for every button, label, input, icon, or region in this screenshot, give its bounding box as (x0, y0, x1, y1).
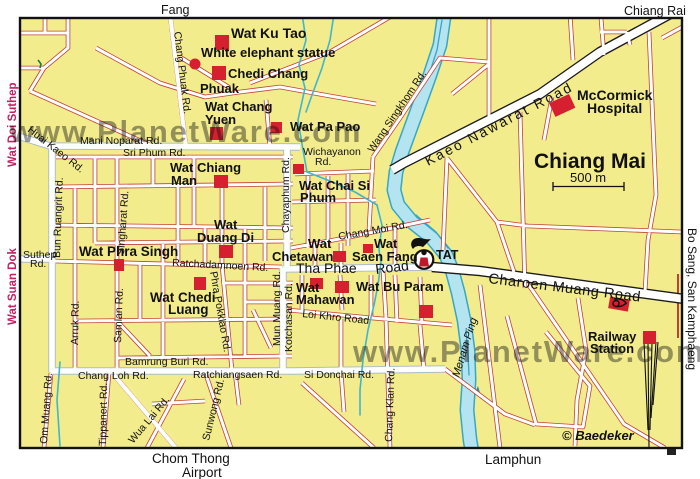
svg-text:Rd.: Rd. (315, 156, 331, 168)
svg-text:Wat Phra Singh: Wat Phra Singh (79, 244, 178, 259)
svg-text:Si Donchai Rd.: Si Donchai Rd. (304, 369, 374, 381)
svg-text:© Baedeker: © Baedeker (562, 428, 635, 443)
svg-text:Phuak: Phuak (200, 81, 240, 96)
svg-text:Samlan Rd.: Samlan Rd. (112, 288, 126, 343)
svg-text:Kotchasan Rd.: Kotchasan Rd. (283, 283, 295, 352)
svg-text:Mun Muang Rd.: Mun Muang Rd. (271, 271, 283, 346)
svg-text:Airport: Airport (182, 465, 222, 479)
svg-text:Tha Phae: Tha Phae (296, 260, 357, 276)
svg-text:Chiang Rai: Chiang Rai (624, 4, 686, 18)
svg-text:Duang Di: Duang Di (197, 230, 254, 245)
svg-text:Chang Loh Rd.: Chang Loh Rd. (78, 370, 149, 382)
svg-text:Rd.: Rd. (30, 258, 46, 270)
svg-text:Chom Thong: Chom Thong (152, 451, 230, 466)
svg-text:Bamrung Buri Rd.: Bamrung Buri Rd. (125, 356, 208, 368)
svg-text:Wat Bu Param: Wat Bu Param (356, 279, 444, 294)
svg-text:Wat Suan Dok: Wat Suan Dok (7, 248, 19, 325)
svg-text:Ratchiangsaen Rd.: Ratchiangsaen Rd. (193, 369, 282, 381)
svg-text:www.PlanetWare.com: www.PlanetWare.com (9, 114, 362, 149)
svg-text:Lamphun: Lamphun (485, 452, 541, 467)
svg-text:Arruk Rd.: Arruk Rd. (69, 301, 82, 346)
svg-text:Wat Ku Tao: Wat Ku Tao (231, 25, 306, 41)
svg-text:Chedi Chang: Chedi Chang (228, 66, 308, 81)
svg-text:Tippanert Rd.: Tippanert Rd. (97, 383, 110, 446)
svg-text:Fang: Fang (161, 3, 190, 17)
svg-text:Hospital: Hospital (587, 100, 642, 116)
svg-text:Man: Man (171, 173, 197, 188)
svg-text:Chayaphum Rd.: Chayaphum Rd. (280, 157, 292, 233)
svg-text:www.PlanetWare.com: www.PlanetWare.com (352, 334, 700, 369)
svg-text:Phum: Phum (300, 190, 336, 205)
svg-text:500 m: 500 m (570, 170, 606, 185)
svg-text:Luang: Luang (168, 302, 209, 317)
svg-text:White elephant statue: White elephant statue (201, 45, 335, 60)
svg-text:Mahawan: Mahawan (296, 292, 355, 307)
svg-text:TAT: TAT (436, 248, 459, 262)
